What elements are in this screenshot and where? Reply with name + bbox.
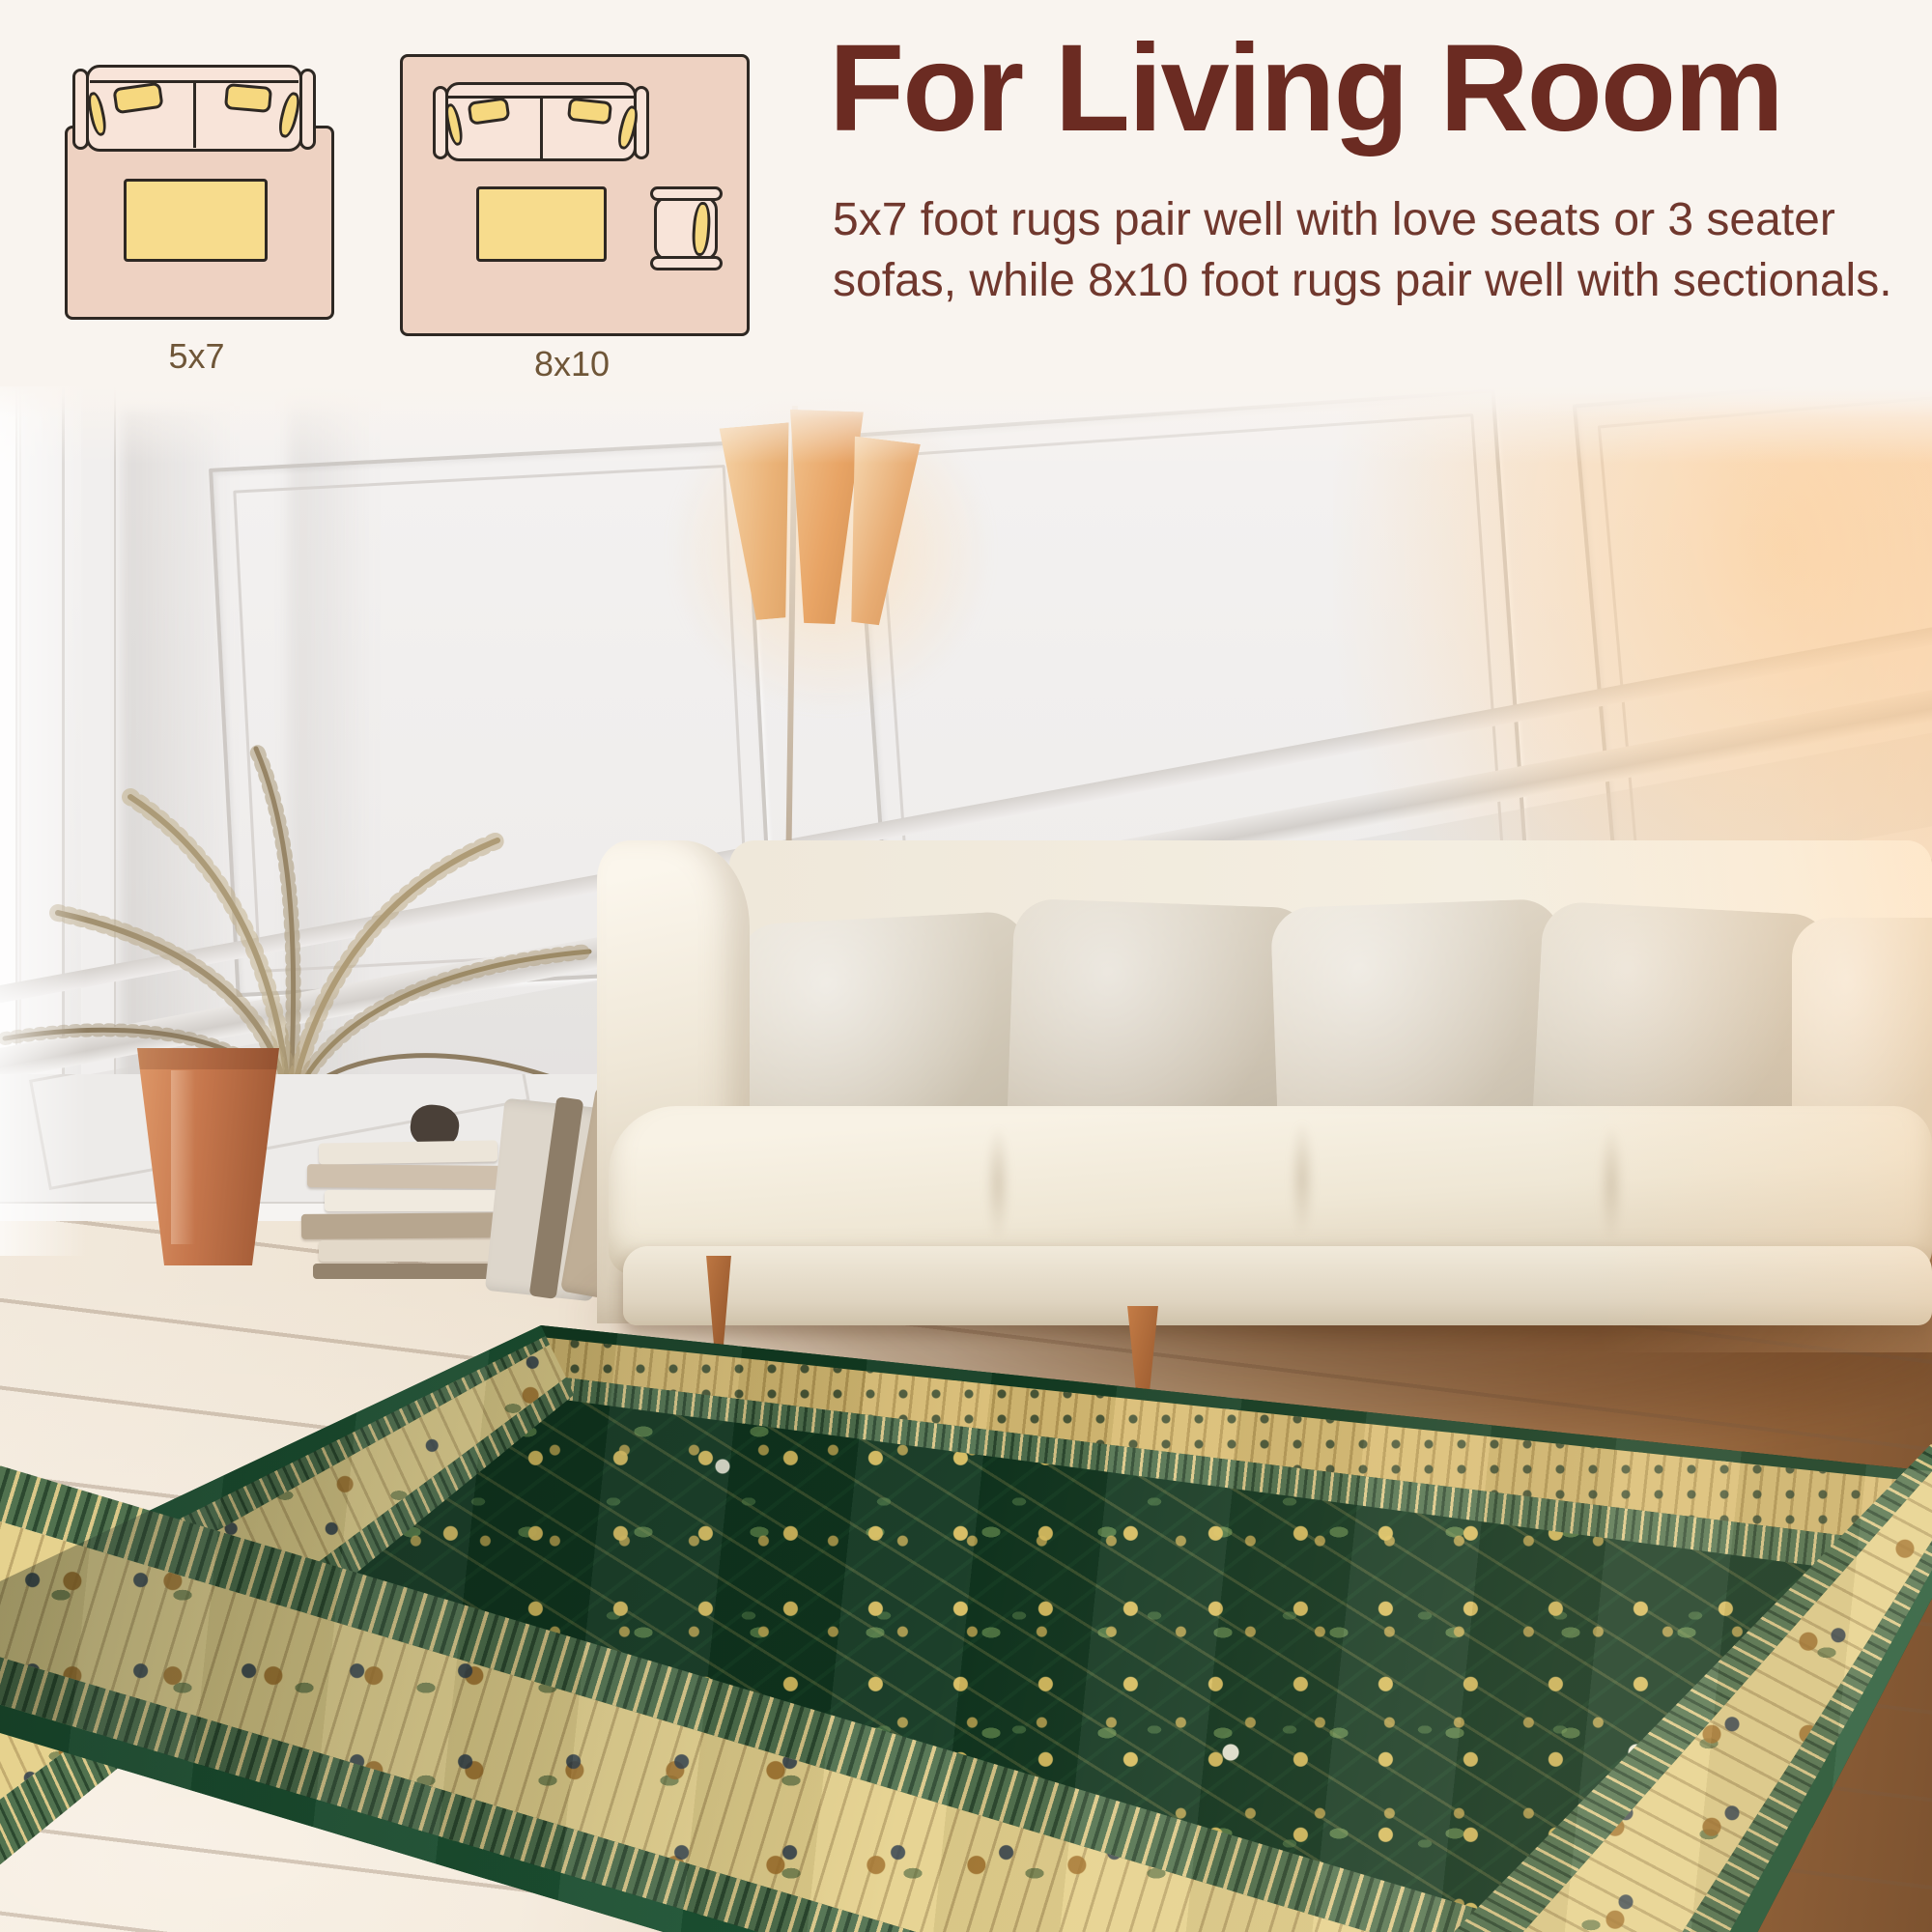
pot-rim [124, 1048, 293, 1069]
diagram-sofa [433, 82, 649, 161]
sunlight-overlay [1207, 386, 1932, 1352]
page-description: 5x7 foot rugs pair well with love seats … [833, 189, 1905, 312]
diagram-coffee-table [476, 186, 607, 262]
diagram-size-label: 5x7 [65, 336, 328, 377]
diagram-armrest [72, 69, 89, 150]
book [325, 1190, 500, 1211]
book [319, 1140, 497, 1164]
rug-product-infographic: 5x7 8x10 [0, 0, 1932, 1932]
diagram-armchair [650, 186, 723, 270]
diagram-armchair-arm [650, 186, 723, 201]
diagram-size-label: 8x10 [400, 344, 744, 384]
diagram-pillow [224, 83, 272, 113]
seat-crease [985, 1125, 1010, 1241]
page-title: For Living Room [829, 27, 1920, 151]
dried-palm-plant [0, 705, 628, 1121]
diagram-sofa-divider [193, 80, 196, 148]
left-light-edge [0, 386, 87, 1256]
diagram-pillow [567, 98, 612, 126]
diagram-sofa-divider [540, 96, 543, 158]
pot-highlight [171, 1070, 195, 1244]
info-section: 5x7 8x10 [0, 0, 1932, 417]
book [301, 1212, 512, 1239]
diagram-armchair-arm [650, 256, 723, 270]
book [307, 1164, 512, 1189]
diagram-coffee-table [124, 179, 268, 262]
book [313, 1264, 510, 1279]
diagram-armrest [299, 69, 316, 150]
diagram-sofa [72, 65, 316, 152]
book [319, 1240, 508, 1262]
